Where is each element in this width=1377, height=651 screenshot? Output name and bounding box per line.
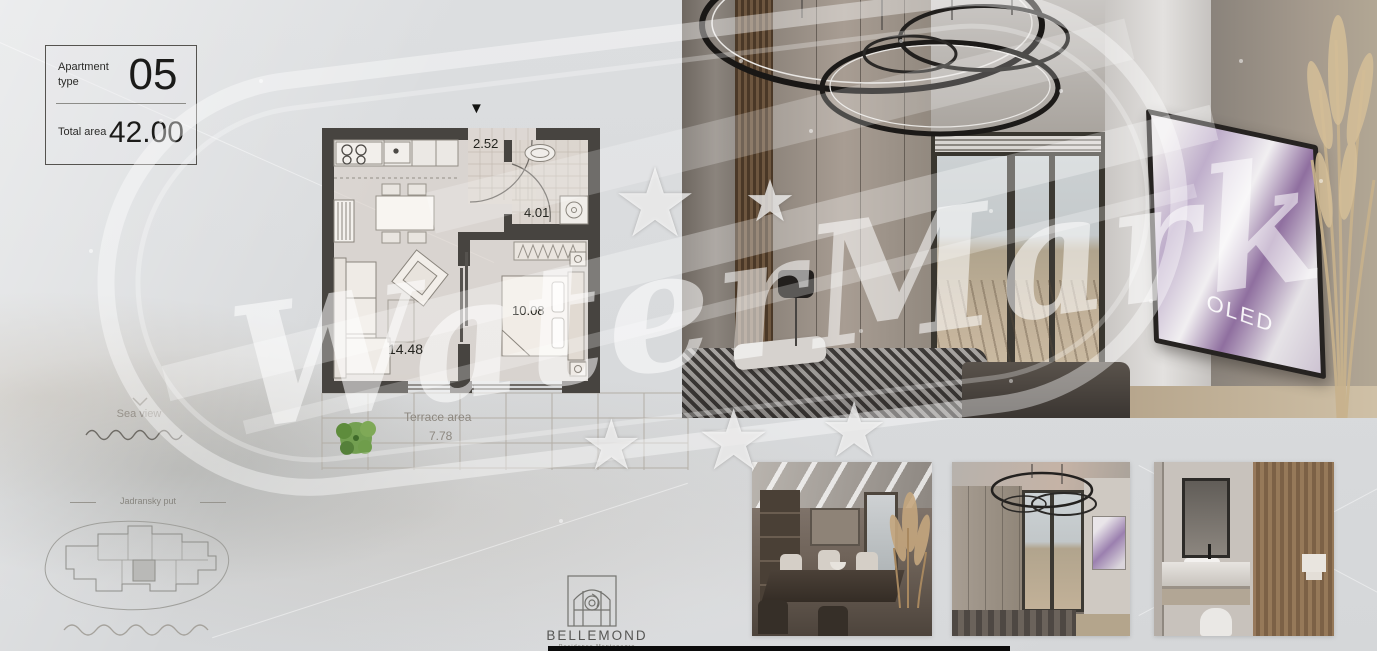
bed-duvet: [962, 362, 1130, 418]
terrace-glass-doors: [408, 385, 562, 389]
room-area-bathroom: 4.01: [524, 205, 549, 220]
thumb-bed: [952, 610, 1076, 636]
apartment-type-value: 05: [122, 50, 184, 100]
dining-chair-foreground: [758, 600, 788, 634]
apartment-type-label: Apartment type: [58, 60, 122, 89]
dining-chair: [856, 552, 878, 572]
room-area-bedroom: 10.08: [512, 303, 545, 318]
thumbnail-bedroom: [952, 462, 1130, 636]
sea-view-label: Sea view: [103, 408, 175, 420]
pampas-grass-small: [886, 488, 932, 608]
thumb-shelf-niche: [1302, 554, 1326, 572]
bedside-lamp-stem: [795, 298, 797, 346]
tv-screen-image: [1151, 115, 1321, 374]
thumb-door-frame: [1154, 462, 1164, 636]
terrace-label: Terrace area: [404, 410, 471, 424]
thumb-artwork: [1092, 516, 1126, 570]
thumb-toilet: [1200, 608, 1232, 636]
ring-chandelier-small: [972, 464, 1112, 524]
total-area-row: Total area 42.00: [46, 104, 196, 161]
thumb-faucet: [1208, 544, 1211, 559]
thumb-floor: [1076, 614, 1130, 636]
brochure-page: Apartment type 05 Total area 42.00: [0, 0, 1377, 651]
wave-icon: [82, 424, 188, 442]
sea-wave-icon: [64, 625, 208, 635]
bed-checkered-blanket: [682, 348, 987, 418]
site-plan-drawing: [30, 500, 240, 645]
apartment-info-card: Apartment type 05 Total area 42.00: [45, 45, 197, 165]
thumb-vanity-cabinet: [1162, 589, 1250, 605]
thumb-wood-slat-wall: [1256, 462, 1334, 636]
dining-chair-foreground: [818, 606, 848, 636]
snow-speckles: [0, 0, 2, 2]
highlighted-unit: [133, 560, 155, 581]
room-area-living: 14.48: [388, 341, 423, 357]
entrance-marker: ▼: [469, 100, 484, 117]
thumb-mirror: [1182, 478, 1230, 558]
tv-screen: OLED: [1146, 109, 1326, 380]
thumb-vanity: [1162, 562, 1250, 589]
bottom-border-bar: [548, 646, 1010, 651]
total-area-value: 42.00: [109, 116, 184, 150]
brand-logo-text: BELLEMOND: [535, 628, 659, 643]
terrace-area-value: 7.78: [429, 429, 452, 443]
thumbnail-bathroom: [1154, 462, 1334, 636]
bedside-lamp: [778, 270, 814, 298]
main-photo-bedroom: OLED: [682, 0, 1377, 418]
bellemond-logo-emblem: [564, 574, 620, 628]
thumbnail-dining-room: [752, 462, 932, 636]
ring-chandelier: [682, 0, 1162, 160]
terrace-grid: [322, 393, 688, 470]
room-area-hall: 2.52: [473, 136, 498, 151]
total-area-label: Total area: [58, 125, 109, 139]
dining-table: [761, 570, 904, 602]
thumb-artwork: [810, 508, 860, 546]
chevron-down-icon: [131, 396, 149, 408]
floor-plan-drawing: [300, 95, 700, 480]
radiator: [334, 200, 354, 242]
tree-icon: [336, 421, 376, 455]
apartment-type-row: Apartment type 05: [46, 46, 196, 103]
pampas-grass: [1302, 10, 1377, 418]
